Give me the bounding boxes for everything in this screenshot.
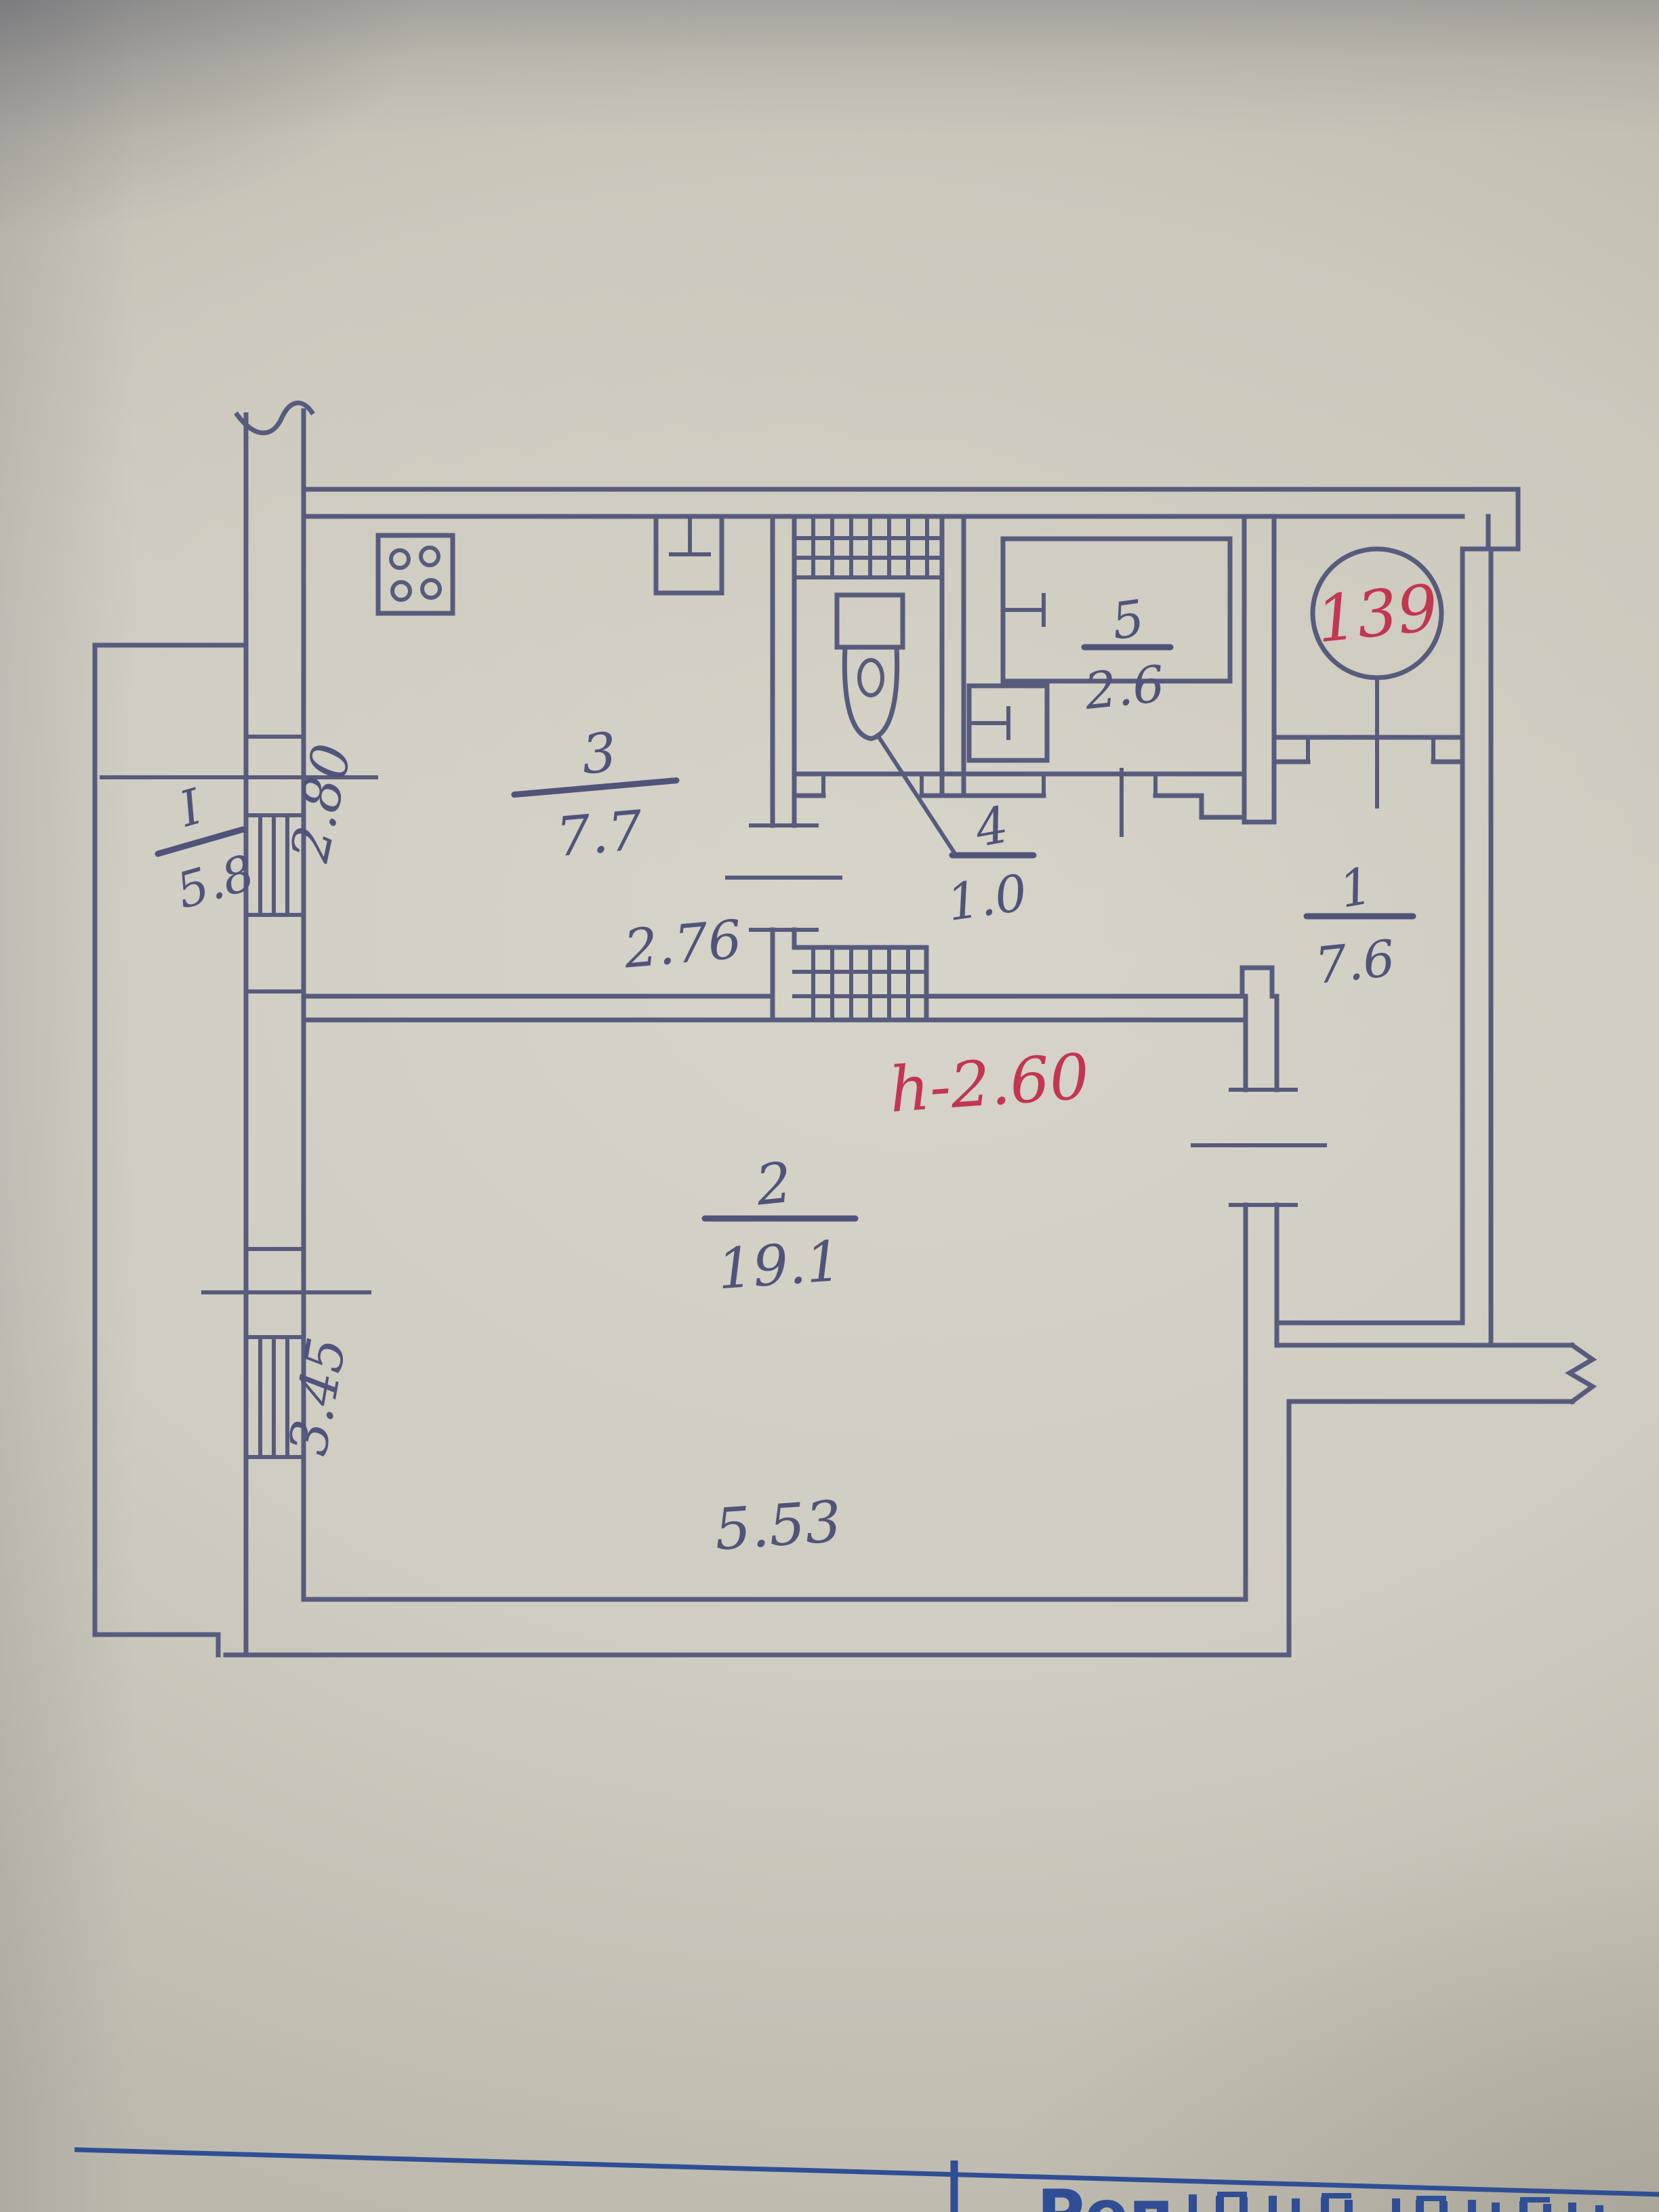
- bottom-stamp: Реп: [75, 2150, 1659, 2212]
- washbasin-icon: [969, 686, 1047, 760]
- bath-vestibule-wall: [1244, 516, 1274, 822]
- ceiling-height-note: h-2.60: [887, 1040, 1092, 1126]
- kitchen-number: 3: [579, 720, 619, 786]
- label-living: 2 19.1: [705, 1151, 855, 1303]
- staircase-side-wall: [1277, 1323, 1593, 1655]
- sink-icon: [656, 516, 722, 593]
- entrance-door-opening: [1308, 679, 1433, 806]
- living-room-top-wall: [304, 968, 1272, 1020]
- wc-bath-bottom-wall: [794, 774, 1244, 817]
- living-hall-wall: [1246, 996, 1277, 1599]
- balcony-outline: [95, 645, 246, 1655]
- toilet-icon: [837, 595, 903, 739]
- photographed-floor-plan-page: { "plan": { "rooms": { "balcony": { "num…: [0, 0, 1659, 2212]
- wc-area: 1.0: [943, 863, 1031, 933]
- label-kitchen: 3 7.7: [509, 716, 683, 872]
- wc-number: 4: [970, 796, 1012, 859]
- balcony-number: I: [172, 777, 209, 838]
- bath-number: 5: [1108, 589, 1148, 651]
- floor-plan-drawing: 139 3 7.7 4 1.0 5 2.: [0, 0, 1659, 2212]
- hall-number: 1: [1335, 857, 1376, 920]
- wc-bath-partition-wall: [942, 516, 964, 796]
- stamp-letter-tops: [1193, 2194, 1599, 2212]
- stamp-text-fragment: Реп: [1037, 2176, 1174, 2212]
- wc-vent-shaft-hatch: [794, 518, 942, 577]
- floor-plan-photo: 139 3 7.7 4 1.0 5 2.: [0, 0, 1659, 2212]
- apartment-number: 139: [1313, 571, 1441, 657]
- living-room-door-opening: [1193, 1090, 1325, 1205]
- kitchen-area: 7.7: [554, 798, 645, 869]
- hall-area: 7.6: [1312, 929, 1397, 996]
- apartment-number-circle: 139: [1313, 549, 1441, 678]
- bath-area: 2.6: [1081, 655, 1167, 721]
- stove-icon: [378, 535, 453, 613]
- bottom-exterior-wall: [226, 1599, 1289, 1655]
- wall-break-icon: [1570, 1345, 1593, 1401]
- kitchen-window-hatch: [260, 815, 287, 915]
- dim-living-width: 5.53: [712, 1488, 843, 1563]
- label-bath: 5 2.6: [1081, 589, 1170, 721]
- right-exterior-wall: [1462, 549, 1491, 1345]
- living-area: 19.1: [716, 1229, 844, 1303]
- dim-living-depth: 3.45: [278, 1333, 359, 1460]
- dim-kitchen-depth: 2.80: [279, 739, 363, 867]
- label-hall: 1 7.6: [1307, 857, 1413, 996]
- lower-vent-shaft-hatch: [794, 947, 926, 1020]
- kitchen-right-wall: [773, 516, 794, 1020]
- living-number: 2: [752, 1151, 795, 1218]
- kitchen-door-opening: [727, 825, 840, 930]
- label-wc: 4 1.0: [878, 735, 1033, 933]
- left-exterior-wall: [237, 403, 312, 1655]
- bath-door-opening: [1044, 770, 1155, 835]
- dim-kitchen-width: 2.76: [621, 909, 744, 981]
